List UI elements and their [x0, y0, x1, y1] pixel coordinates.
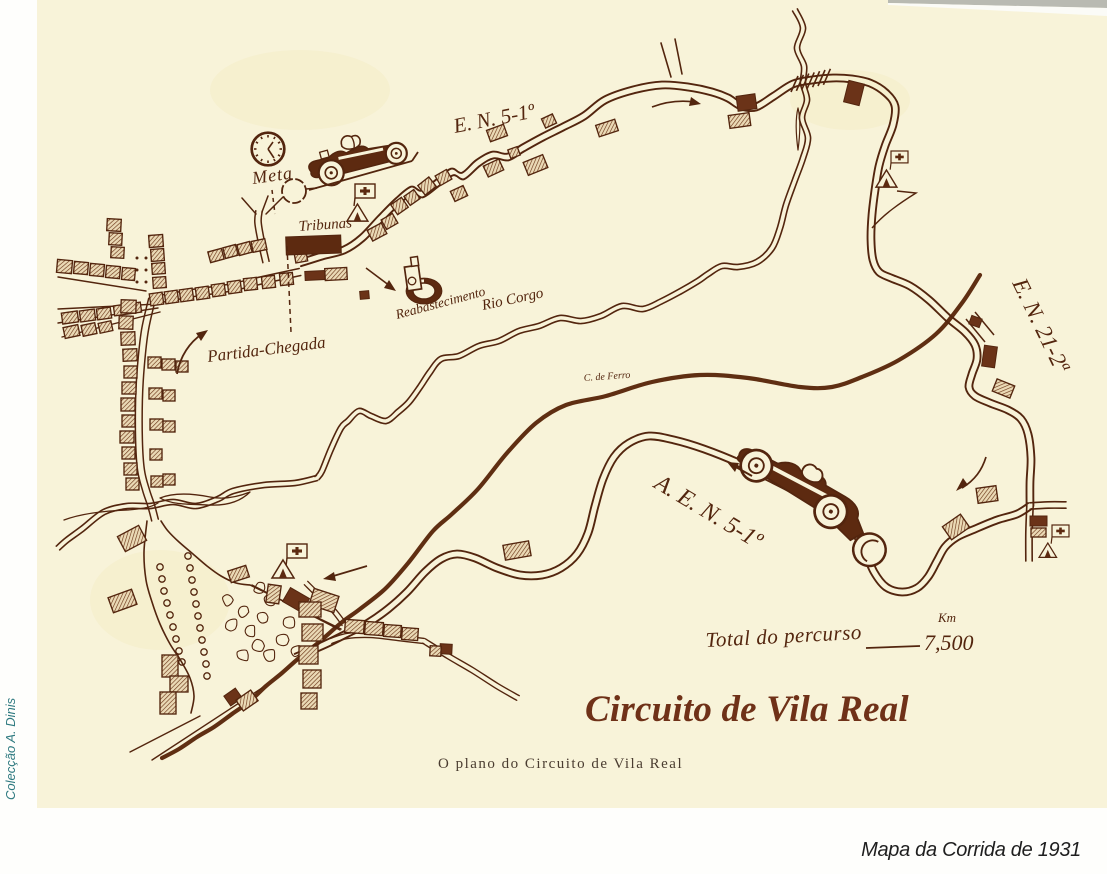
svg-text:7,500: 7,500	[924, 630, 974, 655]
svg-text:Circuito de Vila Real: Circuito de Vila Real	[585, 689, 909, 730]
svg-text:Mapa da Corrida de 1931: Mapa da Corrida de 1931	[861, 839, 1081, 861]
svg-text:Km: Km	[937, 610, 956, 625]
svg-text:O plano do Circuito de Vila Re: O plano do Circuito de Vila Real	[438, 756, 683, 772]
svg-text:Colecção A. Dinis: Colecção A. Dinis	[3, 697, 18, 800]
